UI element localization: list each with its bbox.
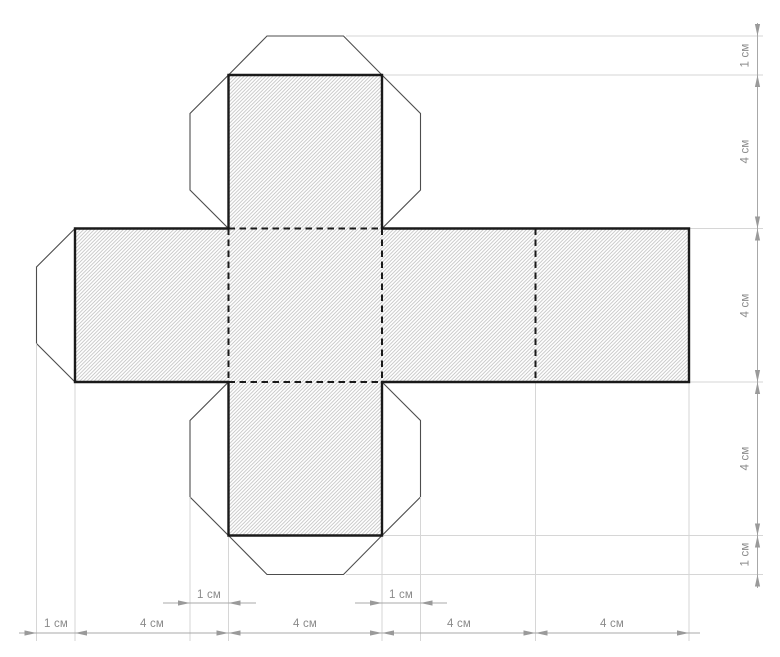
dim-label-bottom-4: 4 см — [590, 618, 634, 631]
dim-label-bottom-0: 1 см — [34, 618, 78, 631]
flap-bottom-left — [190, 382, 229, 536]
cube-net-diagram: 1 см 4 см 4 см 4 см 1 см 1 см 1 см 1 см … — [0, 0, 780, 657]
dim-label-bottom-1: 4 см — [130, 618, 174, 631]
flap-bottom-right — [382, 382, 421, 536]
face-top — [229, 75, 383, 229]
dim-label-right-0: 1 см — [740, 34, 753, 78]
dim-label-right-1: 4 см — [740, 130, 753, 174]
dim-label-tab-1: 1 см — [379, 589, 423, 602]
dim-label-bottom-3: 4 см — [437, 618, 481, 631]
dim-label-right-2: 4 см — [740, 284, 753, 328]
dim-label-tab-0: 1 см — [187, 589, 231, 602]
face-bottom — [229, 382, 383, 536]
dim-label-bottom-2: 4 см — [283, 618, 327, 631]
flap-bottom — [229, 536, 383, 575]
flap-top — [229, 36, 383, 75]
dim-label-right-4: 1 см — [740, 533, 753, 577]
dim-label-right-3: 4 см — [740, 437, 753, 481]
flap-top-right — [382, 75, 421, 229]
flap-row-left — [37, 229, 76, 383]
cube-net-drawing — [0, 0, 780, 657]
flap-top-left — [190, 75, 229, 229]
